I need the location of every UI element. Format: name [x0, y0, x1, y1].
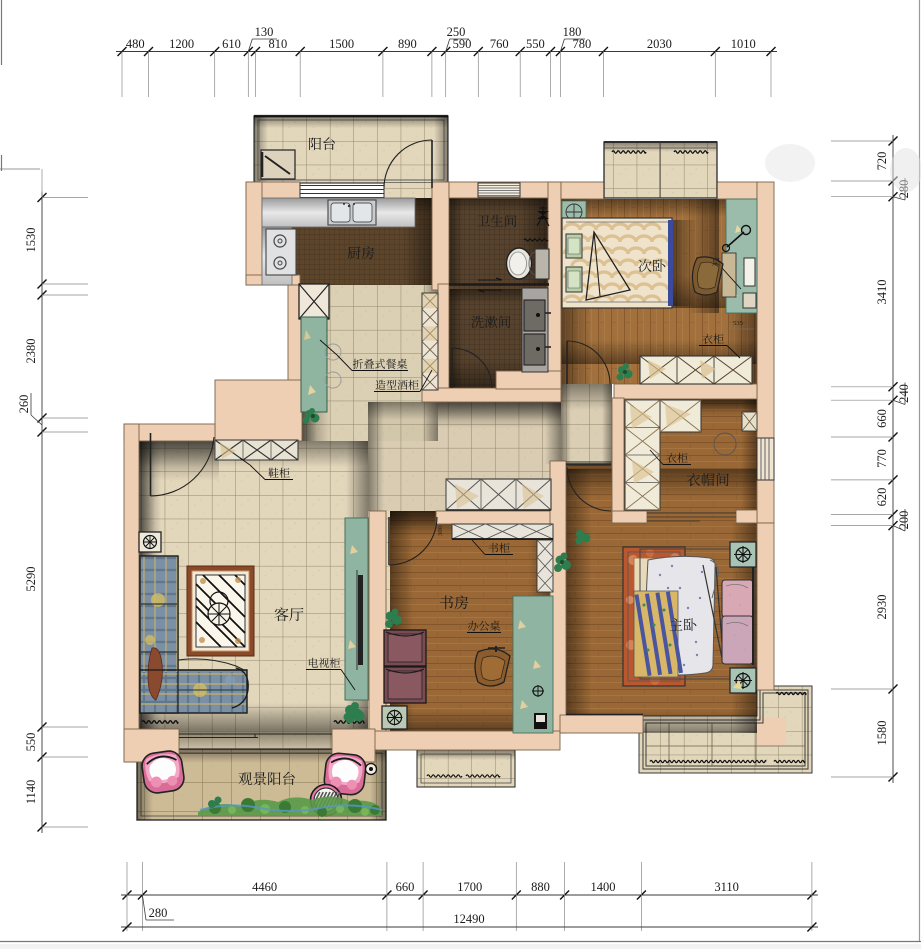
svg-text:1400: 1400 [591, 880, 616, 894]
svg-text:300: 300 [437, 526, 444, 536]
svg-text:770: 770 [875, 449, 889, 468]
svg-text:660: 660 [396, 880, 415, 894]
svg-text:5290: 5290 [24, 567, 38, 592]
svg-text:260: 260 [17, 395, 31, 414]
svg-text:760: 760 [490, 37, 509, 51]
svg-text:550: 550 [526, 37, 545, 51]
svg-text:1580: 1580 [875, 721, 889, 746]
svg-text:620: 620 [875, 488, 889, 507]
svg-text:280: 280 [149, 906, 168, 920]
svg-text:12490: 12490 [453, 912, 484, 926]
svg-text:1200: 1200 [169, 37, 194, 51]
svg-text:180: 180 [563, 25, 582, 39]
svg-text:880: 880 [531, 880, 550, 894]
svg-text:4460: 4460 [252, 880, 277, 894]
svg-text:2030: 2030 [647, 37, 672, 51]
svg-text:240: 240 [897, 384, 911, 403]
svg-text:480: 480 [126, 37, 145, 51]
svg-text:1140: 1140 [24, 780, 38, 805]
svg-text:1700: 1700 [457, 880, 482, 894]
svg-text:1500: 1500 [329, 37, 354, 51]
svg-text:610: 610 [222, 37, 241, 51]
svg-text:3410: 3410 [875, 280, 889, 305]
svg-text:130: 130 [255, 25, 274, 39]
svg-text:2930: 2930 [875, 595, 889, 620]
svg-text:550: 550 [24, 733, 38, 752]
svg-text:1010: 1010 [731, 37, 756, 51]
svg-text:250: 250 [447, 25, 466, 39]
svg-text:3110: 3110 [714, 880, 739, 894]
svg-text:890: 890 [398, 37, 417, 51]
svg-text:2380: 2380 [24, 339, 38, 364]
svg-text:200: 200 [897, 511, 911, 530]
svg-text:1530: 1530 [24, 228, 38, 253]
svg-text:720: 720 [875, 152, 889, 171]
svg-text:535: 535 [733, 320, 743, 327]
svg-text:660: 660 [875, 409, 889, 428]
